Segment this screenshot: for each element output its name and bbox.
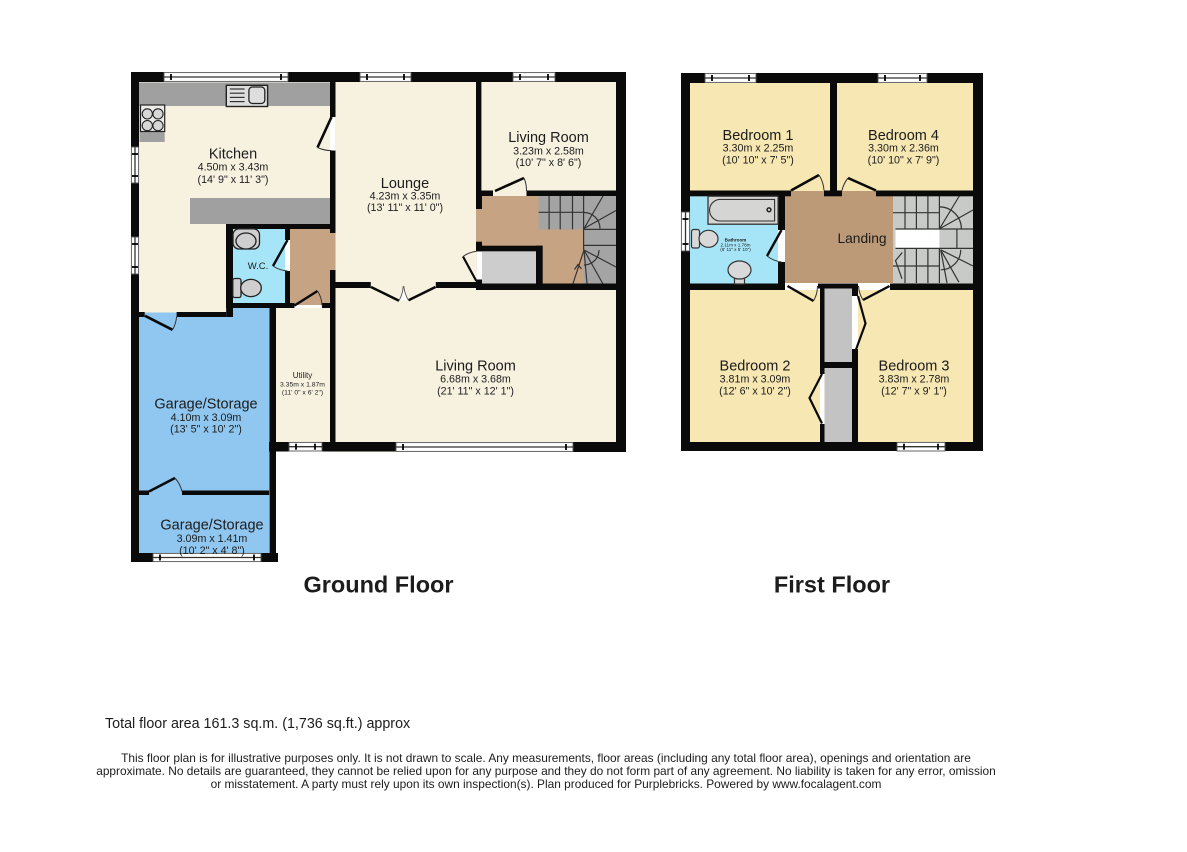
svg-text:Utility: Utility <box>293 371 313 380</box>
svg-text:6.68m x 3.68m: 6.68m x 3.68m <box>440 374 511 386</box>
svg-text:3.23m x 2.58m: 3.23m x 2.58m <box>513 146 584 158</box>
svg-text:3.30m x 2.25m: 3.30m x 2.25m <box>723 143 794 155</box>
svg-text:(10' 7" x 8' 6"): (10' 7" x 8' 6") <box>516 157 582 169</box>
svg-text:3.81m x 3.09m: 3.81m x 3.09m <box>720 374 791 386</box>
svg-text:This floor plan is for illustr: This floor plan is for illustrative purp… <box>121 751 971 765</box>
svg-text:3.35m x 1.87m: 3.35m x 1.87m <box>280 382 325 389</box>
svg-text:Kitchen: Kitchen <box>209 146 257 162</box>
svg-text:3.09m x 1.41m: 3.09m x 1.41m <box>177 533 248 545</box>
svg-text:(13' 5" x 10' 2"): (13' 5" x 10' 2") <box>170 424 242 436</box>
svg-text:4.10m x 3.09m: 4.10m x 3.09m <box>171 412 242 424</box>
svg-text:or misstatement. A party must: or misstatement. A party must rely upon … <box>211 777 882 791</box>
svg-text:W.C.: W.C. <box>248 261 269 272</box>
svg-text:3.83m x 2.78m: 3.83m x 2.78m <box>879 374 950 386</box>
svg-text:(10' 2" x 4' 8"): (10' 2" x 4' 8") <box>179 545 245 557</box>
svg-text:Bedroom 3: Bedroom 3 <box>879 359 950 375</box>
svg-text:Bedroom 2: Bedroom 2 <box>720 359 791 375</box>
svg-text:3.30m x 2.36m: 3.30m x 2.36m <box>868 143 939 155</box>
svg-text:(21' 11" x 12' 1"): (21' 11" x 12' 1") <box>437 385 514 397</box>
svg-text:4.50m x 3.43m: 4.50m x 3.43m <box>198 162 269 174</box>
svg-text:(12' 6" x 10' 2"): (12' 6" x 10' 2") <box>719 385 791 397</box>
svg-text:(6' 11" x 5' 10"): (6' 11" x 5' 10") <box>720 247 751 252</box>
svg-text:Landing: Landing <box>837 231 886 246</box>
svg-text:4.23m x 3.35m: 4.23m x 3.35m <box>370 191 441 203</box>
svg-text:(14' 9" x 11' 3"): (14' 9" x 11' 3") <box>198 174 269 186</box>
svg-text:Garage/Storage: Garage/Storage <box>160 518 263 534</box>
svg-text:(11' 0" x 6' 2"): (11' 0" x 6' 2") <box>282 390 323 397</box>
svg-text:(13' 11" x 11' 0"): (13' 11" x 11' 0") <box>367 202 443 214</box>
svg-text:(12' 7" x 9' 1"): (12' 7" x 9' 1") <box>881 385 947 397</box>
svg-text:Living Room: Living Room <box>435 359 516 375</box>
svg-text:(10' 10" x 7' 5"): (10' 10" x 7' 5") <box>722 154 794 166</box>
svg-text:Garage/Storage: Garage/Storage <box>154 397 257 413</box>
svg-text:(10' 10" x 7' 9"): (10' 10" x 7' 9") <box>868 154 940 166</box>
svg-text:Ground Floor: Ground Floor <box>303 572 453 598</box>
svg-text:First Floor: First Floor <box>774 572 890 598</box>
svg-text:approximate. No details are gu: approximate. No details are guaranteed, … <box>96 764 996 778</box>
svg-text:Total floor area 161.3 sq.m. (: Total floor area 161.3 sq.m. (1,736 sq.f… <box>105 716 410 732</box>
svg-text:Living Room: Living Room <box>508 130 589 146</box>
